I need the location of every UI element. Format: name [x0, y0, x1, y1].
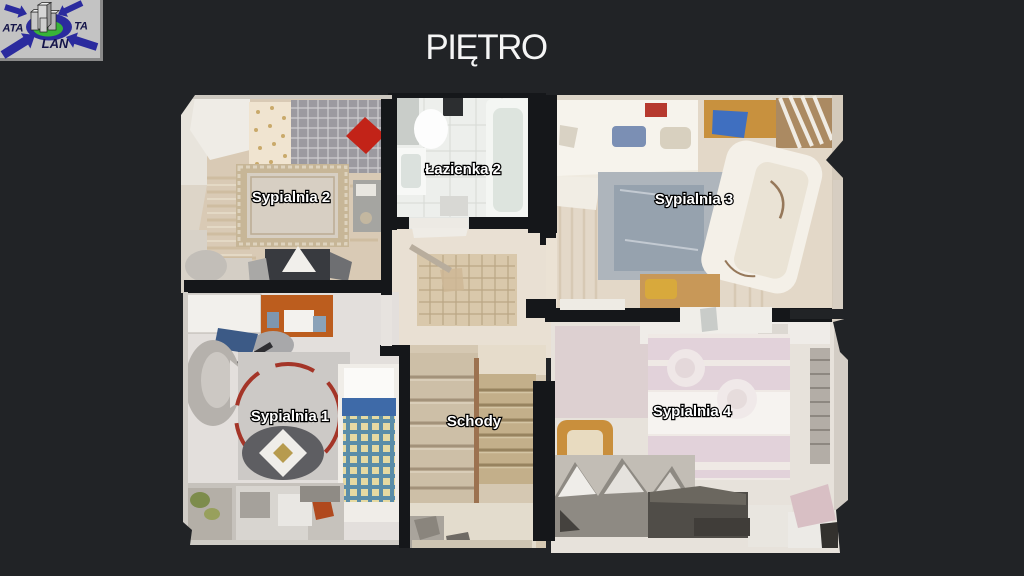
svg-text:PIĘTRO: PIĘTRO	[425, 28, 547, 67]
svg-text:ATA: ATA	[2, 23, 24, 35]
svg-text:Łazienka 2: Łazienka 2	[425, 161, 501, 178]
svg-text:TA: TA	[74, 21, 88, 33]
svg-text:LAN: LAN	[42, 36, 69, 51]
svg-text:Sypialnia 3: Sypialnia 3	[655, 191, 733, 208]
svg-text:Sypialnia 2: Sypialnia 2	[252, 189, 330, 206]
svg-text:Sypialnia 4: Sypialnia 4	[653, 403, 732, 420]
svg-text:Sypialnia 1: Sypialnia 1	[251, 408, 329, 425]
svg-text:Schody: Schody	[447, 413, 502, 430]
